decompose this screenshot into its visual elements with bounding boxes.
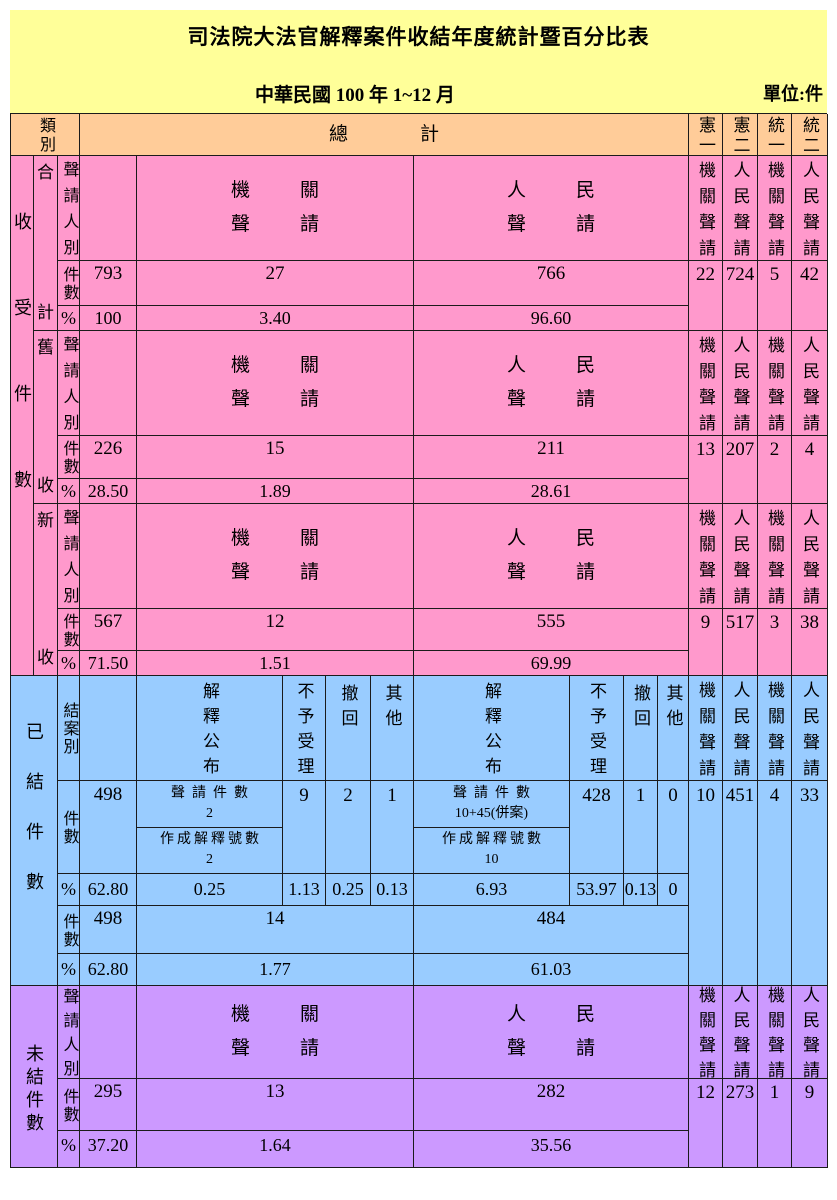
received-total-header-row: 聲請人別 機關聲請 人民聲請 機關聲請 人民聲請 機關聲請 人民聲請 — [58, 156, 828, 261]
organ-apply-vlabel: 機關聲請 — [697, 681, 714, 782]
closed-people-publish-pct: 6.93 — [414, 874, 570, 906]
empty-cell — [80, 156, 137, 261]
organ-apply-vlabel: 機關聲請 — [697, 986, 714, 1079]
c1-subheader: 機關聲請 — [689, 331, 723, 436]
people-apply-vlabel: 人民聲請 — [801, 986, 818, 1079]
organ-publish-split: 聲請件數2 作成解釋號數2 — [137, 781, 283, 874]
u2-subheader: 人民聲請 — [792, 504, 828, 609]
people-apply-count-cell: 聲請件數10+45(併案) — [414, 781, 570, 828]
group-total-name-cell: 合 計 — [34, 156, 58, 331]
received-groups: 合 計 聲請人別 機關聲請 人民聲請 機關聲請 人民聲請 機關聲請 人民聲請 — [34, 156, 828, 676]
header-category-cell: 類別 — [11, 114, 80, 156]
received-old-header-row: 聲請人別 機關聲請 人民聲請 機關聲請 人民聲請 機關聲請 人民聲請 — [58, 331, 828, 436]
organ-line: 聲請 — [231, 389, 369, 411]
applicant-type-label: 聲請人別 — [61, 509, 77, 609]
closed-u2: 33 — [792, 781, 828, 986]
applicant-type-cell: 聲請人別 — [58, 331, 80, 436]
organ-made-count: 2 — [206, 852, 213, 869]
received-old-u2: 4 — [792, 436, 828, 504]
withdraw-label: 撤回 — [632, 684, 649, 734]
pending-section-label-cell: 未結件數 — [11, 986, 58, 1168]
u1-label: 統一 — [766, 116, 783, 156]
pending-people-pct: 35.56 — [414, 1131, 689, 1168]
category-label: 類別 — [37, 117, 53, 155]
c2-subheader: 人民聲請 — [723, 156, 758, 261]
u1-subheader: 機關聲請 — [758, 156, 792, 261]
people-apply-header: 人民聲請 — [414, 156, 689, 261]
organ-line: 機關 — [231, 528, 369, 550]
closed-organ-withdraw-pct: 0.25 — [326, 874, 371, 906]
closed-summary-count: 498 — [80, 906, 137, 954]
applicant-type-label: 聲請人別 — [61, 161, 77, 261]
report-sheet: 司法院大法官解釋案件收結年度統計暨百分比表 中華民國 100 年 1~12 月 … — [10, 10, 827, 1168]
closed-summary-organ-pct: 1.77 — [137, 954, 414, 986]
people-line: 人民 — [507, 1004, 645, 1026]
received-group-total: 合 計 聲請人別 機關聲請 人民聲請 機關聲請 人民聲請 機關聲請 人民聲請 — [34, 156, 828, 331]
people-line: 聲請 — [507, 389, 645, 411]
people-line: 人民 — [507, 528, 645, 550]
organ-apply-count: 2 — [206, 806, 213, 823]
u2-label: 統二 — [801, 116, 818, 156]
received-new-organ-count: 12 — [137, 609, 414, 651]
total-label: 總計 — [329, 124, 511, 146]
pending-total-count: 295 — [80, 1079, 137, 1131]
received-old-count-row: 件數 226 15 211 — [58, 436, 689, 479]
organ-reject-header: 不予受理 — [283, 676, 326, 781]
other-label: 其他 — [384, 684, 401, 734]
closed-summary-count-row: 件數 498 14 484 — [58, 906, 689, 954]
case-type-cell: 結案別 — [58, 676, 80, 781]
received-new-count-row: 件數 567 12 555 — [58, 609, 689, 651]
received-group-old: 舊 收 聲請人別 機關聲請 人民聲請 機關聲請 人民聲請 機關聲請 人民聲請 — [34, 331, 828, 504]
case-count-label-cell: 件數 — [58, 609, 80, 651]
received-old-u1: 2 — [758, 436, 792, 504]
organ-line: 機關 — [231, 180, 369, 202]
pending-header-row: 聲請人別 機關聲請 人民聲請 機關聲請 人民聲請 機關聲請 人民聲請 — [58, 986, 828, 1079]
reject-label: 不予受理 — [296, 682, 313, 781]
pending-organ-pct: 1.64 — [137, 1131, 414, 1168]
organ-line: 聲請 — [231, 1038, 369, 1060]
pending-u1: 1 — [758, 1079, 792, 1168]
received-total-body: 件數 793 27 766 % 100 3.40 96.60 — [58, 261, 828, 331]
closed-summary-pct: 62.80 — [80, 954, 137, 986]
applicant-type-cell: 聲請人別 — [58, 504, 80, 609]
header-c1-cell: 憲一 — [689, 114, 723, 156]
group-old-name-cell: 舊 收 — [34, 331, 58, 504]
percent-label-cell: % — [58, 874, 80, 906]
received-old-organ-pct: 1.89 — [137, 479, 414, 504]
empty-cell — [80, 986, 137, 1079]
closed-summary-people-pct: 61.03 — [414, 954, 689, 986]
organ-apply-vlabel: 機關聲請 — [766, 681, 783, 782]
received-total-count: 793 — [80, 261, 137, 306]
percent-label-cell: % — [58, 954, 80, 986]
people-apply-vlabel: 人民聲請 — [801, 336, 818, 437]
received-total-organ-pct: 3.40 — [137, 306, 414, 331]
percent-label-cell: % — [58, 651, 80, 676]
closed-count-row: 件數 498 聲請件數2 作成解釋號數2 9 2 1 聲請件數10+45(併案) — [58, 781, 689, 874]
case-count-label-cell: 件數 — [58, 906, 80, 954]
organ-apply-count-cell: 聲請件數2 — [137, 781, 283, 828]
received-old-c2: 207 — [723, 436, 758, 504]
people-apply-header: 人民聲請 — [414, 504, 689, 609]
received-total-pct-row: % 100 3.40 96.60 — [58, 306, 689, 331]
people-apply-header: 人民聲請 — [414, 986, 689, 1079]
closed-total-pct: 62.80 — [80, 874, 137, 906]
case-count-label-cell: 件數 — [58, 1079, 80, 1131]
closed-u1: 4 — [758, 781, 792, 986]
received-total-organ-count: 27 — [137, 261, 414, 306]
organ-apply-vlabel: 機關聲請 — [766, 161, 783, 262]
organ-apply-vlabel: 機關聲請 — [697, 336, 714, 437]
applicant-type-label: 聲請人別 — [61, 336, 77, 436]
closed-organ-reject-pct: 1.13 — [283, 874, 326, 906]
publish-label: 解釋公布 — [483, 682, 500, 781]
statistics-table: 類別 總計 憲一 憲二 統一 統二 收受件數 合 計 聲請人別 — [10, 113, 827, 1168]
people-other-header: 其他 — [658, 676, 689, 781]
pending-c2: 273 — [723, 1079, 758, 1168]
period-subtitle: 中華民國 100 年 1~12 月 — [10, 80, 700, 107]
received-new-u1: 3 — [758, 609, 792, 676]
pending-total-pct: 37.20 — [80, 1131, 137, 1168]
closed-people-withdraw-pct: 0.13 — [624, 874, 658, 906]
case-count-label-cell: 件數 — [58, 261, 80, 306]
people-apply-count: 10+45(併案) — [455, 806, 528, 823]
received-total-u1: 5 — [758, 261, 792, 331]
closed-people-reject-pct: 53.97 — [570, 874, 624, 906]
received-new-people-count: 555 — [414, 609, 689, 651]
received-new-pct-row: % 71.50 1.51 69.99 — [58, 651, 689, 676]
closed-section-label-cell: 已結件數 — [11, 676, 58, 986]
c1-label: 憲一 — [697, 116, 714, 156]
case-count-label-cell: 件數 — [58, 781, 80, 874]
closed-summary-pct-row: % 62.80 1.77 61.03 — [58, 954, 689, 986]
received-old-people-pct: 28.61 — [414, 479, 689, 504]
organ-apply-vlabel: 機關聲請 — [766, 986, 783, 1079]
empty-cell — [80, 504, 137, 609]
people-line: 人民 — [507, 180, 645, 202]
received-new-u2: 38 — [792, 609, 828, 676]
received-new-pct: 71.50 — [80, 651, 137, 676]
pending-c1: 12 — [689, 1079, 723, 1168]
group-name-char: 收 — [37, 476, 54, 496]
u1-subheader: 機關聲請 — [758, 986, 792, 1079]
received-total-c1: 22 — [689, 261, 723, 331]
closed-organ-other-count: 1 — [371, 781, 414, 874]
apply-count-label: 聲請件數 — [171, 786, 255, 803]
group-name-char: 舊 — [37, 338, 54, 358]
organ-apply-header: 機關聲請 — [137, 986, 414, 1079]
pending-section-label: 未結件數 — [25, 1044, 43, 1136]
received-total-count-row: 件數 793 27 766 — [58, 261, 689, 306]
pending-body: 件數 295 13 282 % 37.20 1.64 35.56 12 — [58, 1079, 828, 1168]
case-count-label: 件數 — [61, 810, 77, 846]
organ-withdraw-header: 撤回 — [326, 676, 371, 781]
people-apply-vlabel: 人民聲請 — [801, 509, 818, 610]
organ-line: 機關 — [231, 355, 369, 377]
case-count-label: 件數 — [61, 913, 77, 949]
withdraw-label: 撤回 — [340, 684, 357, 734]
received-new-c2: 517 — [723, 609, 758, 676]
received-total-people-count: 766 — [414, 261, 689, 306]
page-title: 司法院大法官解釋案件收結年度統計暨百分比表 — [10, 10, 827, 51]
received-new-c1: 9 — [689, 609, 723, 676]
closed-section: 已結件數 結案別 解釋公布 不予受理 撤回 其他 解釋公布 不予受理 撤回 其他… — [11, 676, 827, 986]
people-withdraw-header: 撤回 — [624, 676, 658, 781]
received-new-people-pct: 69.99 — [414, 651, 689, 676]
organ-apply-vlabel: 機關聲請 — [697, 161, 714, 262]
received-section-label: 收受件數 — [13, 212, 31, 556]
apply-count-label: 聲請件數 — [453, 786, 537, 803]
group-name-char: 合 — [37, 163, 54, 183]
percent-label-cell: % — [58, 479, 80, 504]
u1-subheader: 機關聲請 — [758, 331, 792, 436]
organ-made-count-cell: 作成解釋號數2 — [137, 828, 283, 874]
table-header-row: 類別 總計 憲一 憲二 統一 統二 — [11, 114, 827, 156]
case-count-label: 件數 — [61, 266, 77, 302]
pending-u2: 9 — [792, 1079, 828, 1168]
c1-subheader: 機關聲請 — [689, 676, 723, 781]
u1-subheader: 機關聲請 — [758, 676, 792, 781]
header-u1-cell: 統一 — [758, 114, 792, 156]
received-section: 收受件數 合 計 聲請人別 機關聲請 人民聲請 機關聲請 — [11, 156, 827, 676]
case-count-label: 件數 — [61, 1088, 77, 1124]
banner: 司法院大法官解釋案件收結年度統計暨百分比表 中華民國 100 年 1~12 月 … — [10, 10, 827, 113]
received-old-pct: 28.50 — [80, 479, 137, 504]
closed-people-other-pct: 0 — [658, 874, 689, 906]
header-total-cell: 總計 — [80, 114, 689, 156]
case-count-label: 件數 — [61, 440, 77, 476]
other-label: 其他 — [665, 684, 682, 734]
people-apply-vlabel: 人民聲請 — [801, 681, 818, 782]
c2-label: 憲二 — [732, 116, 749, 156]
c1-subheader: 機關聲請 — [689, 986, 723, 1079]
u1-subheader: 機關聲請 — [758, 504, 792, 609]
people-line: 聲請 — [507, 214, 645, 236]
received-new-organ-pct: 1.51 — [137, 651, 414, 676]
closed-total-count: 498 — [80, 781, 137, 874]
closed-organ-withdraw-count: 2 — [326, 781, 371, 874]
closed-c2: 451 — [723, 781, 758, 986]
people-line: 聲請 — [507, 562, 645, 584]
closed-header-row: 結案別 解釋公布 不予受理 撤回 其他 解釋公布 不予受理 撤回 其他 機關聲請… — [58, 676, 828, 781]
people-apply-vlabel: 人民聲請 — [732, 336, 749, 437]
applicant-type-cell: 聲請人別 — [58, 156, 80, 261]
people-apply-vlabel: 人民聲請 — [732, 509, 749, 610]
closed-people-reject-count: 428 — [570, 781, 624, 874]
closed-organ-other-pct: 0.13 — [371, 874, 414, 906]
organ-publish-header: 解釋公布 — [137, 676, 283, 781]
c2-subheader: 人民聲請 — [723, 504, 758, 609]
pending-pct-row: % 37.20 1.64 35.56 — [58, 1131, 689, 1168]
received-total-people-pct: 96.60 — [414, 306, 689, 331]
group-new-name-cell: 新 收 — [34, 504, 58, 676]
empty-cell — [80, 676, 137, 781]
c1-subheader: 機關聲請 — [689, 504, 723, 609]
header-u2-cell: 統二 — [792, 114, 828, 156]
case-count-label-cell: 件數 — [58, 436, 80, 479]
organ-line: 聲請 — [231, 214, 369, 236]
closed-people-other-count: 0 — [658, 781, 689, 874]
group-name-char: 新 — [37, 511, 54, 531]
page: 司法院大法官解釋案件收結年度統計暨百分比表 中華民國 100 年 1~12 月 … — [0, 0, 837, 1200]
received-total-c2: 724 — [723, 261, 758, 331]
percent-label-cell: % — [58, 1131, 80, 1168]
people-reject-header: 不予受理 — [570, 676, 624, 781]
received-old-organ-count: 15 — [137, 436, 414, 479]
received-old-pct-row: % 28.50 1.89 28.61 — [58, 479, 689, 504]
received-old-c1: 13 — [689, 436, 723, 504]
case-count-label: 件數 — [61, 613, 77, 649]
received-new-body: 件數 567 12 555 % 71.50 1.51 69.99 — [58, 609, 828, 676]
case-type-label: 結案別 — [61, 702, 77, 756]
people-publish-split: 聲請件數10+45(併案) 作成解釋號數10 — [414, 781, 570, 874]
pending-organ-count: 13 — [137, 1079, 414, 1131]
pending-section: 未結件數 聲請人別 機關聲請 人民聲請 機關聲請 人民聲請 機關聲請 人民聲請 … — [11, 986, 827, 1168]
received-old-people-count: 211 — [414, 436, 689, 479]
u2-subheader: 人民聲請 — [792, 986, 828, 1079]
group-name-char: 收 — [37, 648, 54, 668]
people-publish-header: 解釋公布 — [414, 676, 570, 781]
organ-other-header: 其他 — [371, 676, 414, 781]
closed-section-label: 已結件數 — [25, 722, 43, 922]
group-name-char: 計 — [37, 303, 54, 323]
reject-label: 不予受理 — [588, 682, 605, 781]
made-count-label: 作成解釋號數 — [160, 832, 262, 849]
organ-apply-header: 機關聲請 — [137, 504, 414, 609]
organ-apply-vlabel: 機關聲請 — [766, 336, 783, 437]
received-old-body: 件數 226 15 211 % 28.50 1.89 28.61 — [58, 436, 828, 504]
unit-label: 單位:件 — [763, 80, 823, 106]
received-new-count: 567 — [80, 609, 137, 651]
c2-subheader: 人民聲請 — [723, 676, 758, 781]
banner-subrow: 中華民國 100 年 1~12 月 單位:件 — [10, 80, 827, 106]
organ-apply-header: 機關聲請 — [137, 331, 414, 436]
organ-apply-vlabel: 機關聲請 — [766, 509, 783, 610]
people-apply-vlabel: 人民聲請 — [732, 986, 749, 1079]
organ-apply-vlabel: 機關聲請 — [697, 509, 714, 610]
received-old-count: 226 — [80, 436, 137, 479]
organ-apply-header: 機關聲請 — [137, 156, 414, 261]
c2-subheader: 人民聲請 — [723, 331, 758, 436]
applicant-type-label: 聲請人別 — [61, 988, 77, 1079]
closed-organ-reject-count: 9 — [283, 781, 326, 874]
pending-people-count: 282 — [414, 1079, 689, 1131]
percent-label-cell: % — [58, 306, 80, 331]
received-section-label-cell: 收受件數 — [11, 156, 34, 676]
people-apply-header: 人民聲請 — [414, 331, 689, 436]
closed-summary-organ-count: 14 — [137, 906, 414, 954]
publish-label: 解釋公布 — [201, 682, 218, 781]
closed-body: 件數 498 聲請件數2 作成解釋號數2 9 2 1 聲請件數10+45(併案) — [58, 781, 828, 986]
made-count-label: 作成解釋號數 — [442, 832, 544, 849]
empty-cell — [80, 331, 137, 436]
received-new-header-row: 聲請人別 機關聲請 人民聲請 機關聲請 人民聲請 機關聲請 人民聲請 — [58, 504, 828, 609]
people-made-count: 10 — [485, 852, 499, 869]
people-line: 聲請 — [507, 1038, 645, 1060]
closed-people-withdraw-count: 1 — [624, 781, 658, 874]
u2-subheader: 人民聲請 — [792, 156, 828, 261]
closed-organ-publish-pct: 0.25 — [137, 874, 283, 906]
organ-line: 機關 — [231, 1004, 369, 1026]
people-apply-vlabel: 人民聲請 — [732, 161, 749, 262]
u2-subheader: 人民聲請 — [792, 331, 828, 436]
u2-subheader: 人民聲請 — [792, 676, 828, 781]
c1-subheader: 機關聲請 — [689, 156, 723, 261]
header-c2-cell: 憲二 — [723, 114, 758, 156]
people-line: 人民 — [507, 355, 645, 377]
c2-subheader: 人民聲請 — [723, 986, 758, 1079]
received-total-u2: 42 — [792, 261, 828, 331]
people-apply-vlabel: 人民聲請 — [801, 161, 818, 262]
closed-c1: 10 — [689, 781, 723, 986]
received-total-pct: 100 — [80, 306, 137, 331]
pending-count-row: 件數 295 13 282 — [58, 1079, 689, 1131]
people-apply-vlabel: 人民聲請 — [732, 681, 749, 782]
organ-line: 聲請 — [231, 562, 369, 584]
people-made-count-cell: 作成解釋號數10 — [414, 828, 570, 874]
received-group-new: 新 收 聲請人別 機關聲請 人民聲請 機關聲請 人民聲請 機關聲請 人民聲請 — [34, 504, 828, 676]
applicant-type-cell: 聲請人別 — [58, 986, 80, 1079]
closed-pct-row: % 62.80 0.25 1.13 0.25 0.13 6.93 53.97 0… — [58, 874, 689, 906]
closed-summary-people-count: 484 — [414, 906, 689, 954]
